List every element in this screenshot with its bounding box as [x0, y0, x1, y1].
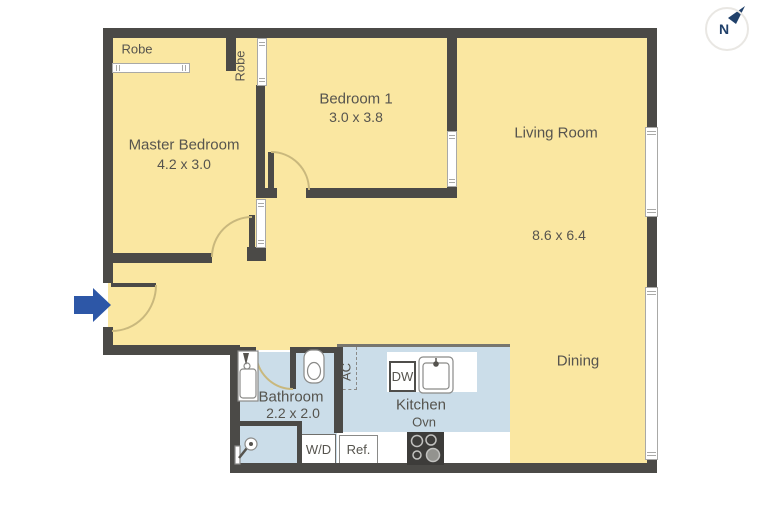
wall-bathroom-top-left: [240, 347, 256, 353]
wall-bedroom1-left: [256, 85, 265, 198]
wall-shower-right: [297, 421, 302, 467]
kitchen-boundary-line: [337, 344, 510, 347]
washer-dryer-box: W/D: [301, 434, 336, 465]
kitchen-label: Kitchen: [396, 398, 446, 413]
master-bedroom-label: Master Bedroom: [129, 138, 240, 153]
bedroom1-dims: 3.0 x 3.8: [329, 110, 383, 124]
living-room-window: [645, 127, 658, 217]
wall-shower-top: [238, 421, 302, 426]
ac-label: AC: [340, 363, 353, 381]
bedroom1-label: Bedroom 1: [319, 92, 392, 107]
wall-hall-bottom: [103, 345, 240, 355]
wall-bathroom-left: [230, 345, 240, 473]
wall-bedroom1-left-stub: [256, 188, 277, 198]
floor-plan: DW Ref. W/D: [0, 0, 768, 512]
fridge-label: Ref.: [347, 442, 371, 457]
fridge-box: Ref.: [339, 435, 378, 464]
bedroom1-robe-slider: [257, 38, 267, 86]
bathroom-dims: 2.2 x 2.0: [266, 406, 320, 420]
wall-top: [103, 28, 657, 38]
wall-bathroom-top-right: [290, 347, 337, 353]
entry-arrow: [74, 288, 111, 322]
master-robe-label: Robe: [121, 43, 152, 56]
master-sliding-door: [256, 199, 266, 248]
living-room-label: Living Room: [514, 126, 597, 141]
wall-slider-return: [247, 247, 266, 261]
compass-north-label: N: [719, 21, 729, 37]
living-room-dims: 8.6 x 6.4: [532, 228, 586, 242]
master-bedroom-dims: 4.2 x 3.0: [157, 157, 211, 171]
bathroom-label: Bathroom: [258, 390, 323, 405]
wall-master-bottom: [103, 253, 212, 263]
master-robe-slider: [112, 63, 190, 73]
dining-label: Dining: [557, 354, 600, 369]
bedroom1-robe-label: Robe: [234, 50, 247, 81]
dining-window: [645, 287, 658, 460]
wall-bottom: [230, 463, 657, 473]
wall-bathroom-kitchen: [334, 347, 343, 433]
oven-label: Ovn: [412, 416, 436, 429]
bedroom1-window: [447, 131, 457, 187]
dishwasher-box: DW: [389, 361, 416, 392]
wall-bedroom1-bottom: [306, 188, 457, 198]
washer-dryer-label: W/D: [306, 442, 331, 457]
dishwasher-label: DW: [392, 369, 414, 384]
